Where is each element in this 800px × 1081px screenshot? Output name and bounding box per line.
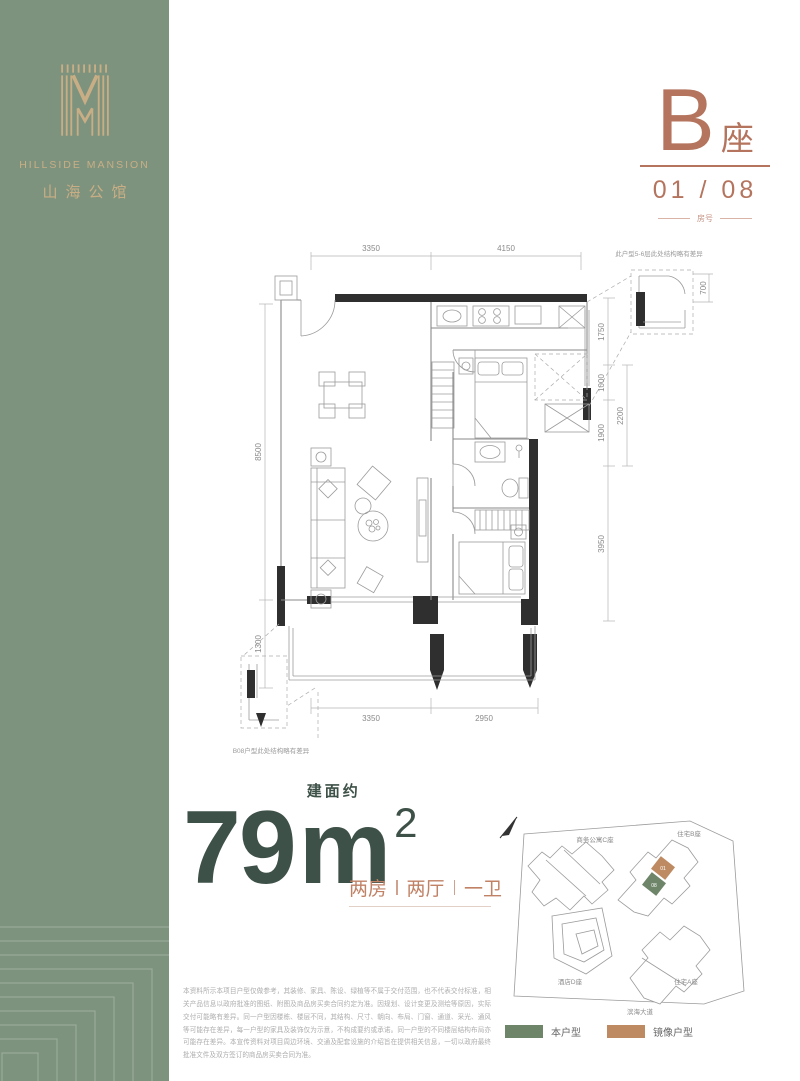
dim-bottom-2: 2950	[475, 714, 493, 723]
dim-right-2: 1000	[597, 374, 606, 392]
dim-right-3: 2200	[616, 407, 625, 425]
dim-right-5: 3950	[597, 535, 606, 553]
layout-specs: 两房 两厅 一卫	[349, 874, 502, 901]
dim-bottom-1: 3350	[362, 714, 380, 723]
tower-c-outline	[528, 842, 614, 910]
decorative-squares-pattern	[0, 771, 169, 1081]
disclaimer-text: 本资料所示本项目户型仅做参考，其装修、家具、陈设、绿植等不属于交付范围，也不代表…	[183, 986, 491, 1063]
legend-label-mirror-unit: 镜像户型	[653, 1024, 693, 1039]
dim-left-2: 1300	[254, 635, 263, 653]
site-plan: 01 08 商务公寓C座 住宅B座 酒店D座 住宅A座 滨海大道	[490, 808, 790, 1020]
hotel-label: 酒店D座	[558, 977, 583, 986]
mirror-unit-label: 01	[660, 866, 666, 872]
area-approx-label: 建面约	[307, 780, 361, 801]
building-suffix: 座	[721, 124, 754, 154]
brand-name-cn: 山海公馆	[0, 181, 169, 202]
brand-sidebar: HILLSIDE MANSION 山海公馆	[0, 0, 169, 1081]
legend-item-this-unit: 本户型	[505, 1024, 581, 1039]
dim-left-1: 8500	[254, 443, 263, 461]
monogram-m-icon	[53, 60, 117, 142]
spec-halls: 两厅	[407, 874, 445, 901]
specs-underline	[349, 906, 491, 907]
floor-plan-walls	[277, 294, 591, 690]
hotel-outline	[552, 908, 612, 974]
floor-plan: 3350 4150 3350 2950 8500 1300 1750 1000 …	[223, 236, 728, 781]
dim-top-1: 3350	[362, 244, 380, 253]
road-label: 滨海大道	[627, 1007, 654, 1016]
tower-a-label: 住宅A座	[674, 977, 698, 986]
dim-right-4: 1900	[597, 424, 606, 442]
this-unit-label: 08	[651, 883, 657, 889]
spec-divider	[454, 880, 456, 895]
unit-numbers: 01 / 08	[634, 176, 776, 205]
caption-dash-left	[658, 218, 690, 219]
legend-swatch-green	[505, 1025, 543, 1038]
unit-caption: 房号	[697, 213, 713, 224]
legend-item-mirror-unit: 镜像户型	[607, 1024, 693, 1039]
dim-right-1: 1750	[597, 323, 606, 341]
dim-top-2: 4150	[497, 244, 515, 253]
site-boundary	[514, 821, 744, 1004]
building-letter: B	[656, 80, 715, 159]
site-plan-legend: 本户型 镜像户型	[505, 1024, 693, 1039]
area-value: 79	[183, 806, 295, 891]
annotation-bottom-left: B08户型此处结构略有差异	[233, 746, 310, 755]
brand-logo-block: HILLSIDE MANSION 山海公馆	[0, 60, 169, 202]
area-exponent: 2	[394, 802, 417, 844]
spec-divider	[396, 880, 398, 895]
unit-header: B 座 01 / 08 房号	[634, 80, 776, 224]
legend-label-this-unit: 本户型	[551, 1024, 581, 1039]
legend-swatch-tan	[607, 1025, 645, 1038]
tower-a-outline	[630, 926, 710, 1004]
brand-name-en: HILLSIDE MANSION	[0, 159, 169, 171]
compass-icon	[500, 817, 517, 838]
spec-bedrooms: 两房	[349, 874, 387, 901]
dim-inset-700: 700	[699, 281, 708, 295]
caption-dash-right	[720, 218, 752, 219]
tower-b-label: 住宅B座	[677, 829, 701, 838]
annotation-top-right: 此户型5-6层此处结构略有差异	[615, 249, 703, 258]
tower-c-label: 商务公寓C座	[576, 835, 614, 844]
